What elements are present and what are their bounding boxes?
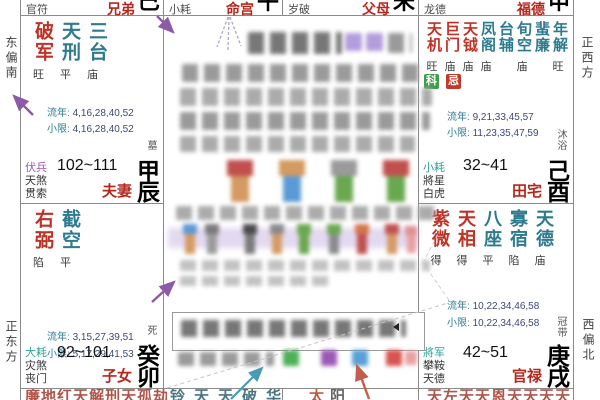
redacted-figure-icon xyxy=(270,224,284,254)
shensha-label: 岁破 xyxy=(288,1,310,17)
redacted-figure-icon xyxy=(331,160,357,202)
lifestage-label: 墓 xyxy=(143,140,158,151)
palace-name: 子女 xyxy=(102,365,132,386)
redacted-figure-icon xyxy=(205,224,219,254)
age-range: 92~101 xyxy=(57,344,111,362)
star-tianyue: 天钺 xyxy=(459,21,477,53)
redacted-text xyxy=(181,320,406,337)
star-status: 平 xyxy=(475,252,501,268)
liunian-row: 流年: 10,22,34,46,58 xyxy=(447,297,539,312)
age-range: 102~111 xyxy=(57,157,117,175)
redacted-summary-box xyxy=(172,312,425,351)
ziwei-chart: 东偏南 正东方 正西方 西偏北 官符 兄弟 巳 小耗 命宫 午 岁破 父母 未 … xyxy=(0,0,600,400)
redacted-figure-icon xyxy=(243,224,257,254)
star-tianxiang: 天相 xyxy=(449,209,475,249)
palace-name: 官禄 xyxy=(512,365,542,386)
shensha-label: 官符 xyxy=(26,1,48,17)
star-status: 庙 xyxy=(527,252,553,268)
redacted-text xyxy=(182,64,420,82)
palace-footer-si: 官符 兄弟 巳 xyxy=(21,0,163,15)
palace-name: 夫妻 xyxy=(102,180,132,201)
palace-you-property: 天机 巨门 天钺 凤阁 台辅 旬空 蜚廉 年解 旺 庙 庙 庙 庙 旺 科 忌 … xyxy=(419,16,572,203)
compass-label-due-west: 正西方 xyxy=(579,36,596,81)
legend-red-badge xyxy=(386,350,402,366)
star-status: 陷 xyxy=(501,252,527,268)
redacted-text xyxy=(178,352,274,366)
redacted-text xyxy=(388,33,412,53)
xiaoxian-row: 小限: 10,22,34,46,58 xyxy=(447,314,539,329)
star-status: 旺 xyxy=(549,58,567,74)
compass-label-due-east: 正东方 xyxy=(3,320,20,365)
star-bazuo: 八座 xyxy=(475,209,501,249)
palace-partial-chou: 铃天天破华 xyxy=(164,389,288,400)
star-feilian: 蜚廉 xyxy=(531,21,549,53)
redacted-text xyxy=(176,206,438,220)
redacted-figure-icon xyxy=(297,224,311,254)
star-status: 庙 xyxy=(79,66,106,82)
star-status: 平 xyxy=(52,66,79,82)
redacted-figure-icon xyxy=(327,224,341,254)
palace-footer-shen: 龙德 福德 申 xyxy=(419,0,573,15)
lifestage-label: 冠带 xyxy=(553,316,568,338)
lifestage-label: 沐浴 xyxy=(553,129,568,151)
legend-blue-badge xyxy=(352,350,368,366)
xiaoxian-row: 小限: 11,23,35,47,59 xyxy=(447,124,539,139)
star-tianji: 天机 xyxy=(423,21,441,53)
redacted-text xyxy=(180,112,430,130)
branch-char: 未 xyxy=(393,0,415,13)
redacted-figure-icon xyxy=(279,160,305,202)
star-status: 庙 xyxy=(513,58,531,74)
grid-line xyxy=(163,0,164,400)
sihua-ji-badge: 忌 xyxy=(446,74,461,89)
star-status: 庙 xyxy=(459,58,477,74)
star-status: 旺 xyxy=(423,58,441,74)
age-range: 42~51 xyxy=(463,344,508,362)
star-taifu: 台辅 xyxy=(495,21,513,53)
redacted-figure-icon xyxy=(405,226,417,253)
star-status xyxy=(531,58,549,74)
shensha-label: 小耗 xyxy=(169,1,191,17)
ganzhi: 庚 戌 xyxy=(547,346,570,388)
palace-footer-wei: 岁破 父母 未 xyxy=(283,0,418,15)
star-status: 陷 xyxy=(25,254,52,270)
palace-name: 父母 xyxy=(362,0,390,19)
star-status xyxy=(495,58,513,74)
ganzhi: 甲 辰 xyxy=(137,161,160,203)
age-range: 32~41 xyxy=(463,157,508,175)
star-status: 平 xyxy=(52,254,79,270)
star-pojun: 破军 xyxy=(25,21,52,63)
dashed-fan-line xyxy=(217,17,228,47)
grid-line xyxy=(573,0,574,400)
star-fengge: 凤阁 xyxy=(477,21,495,53)
redacted-purple-tag xyxy=(366,33,383,51)
palace-chen-spouse: 破军 天刑 三台 旺 平 庙 流年: 4,16,28,40,52 小限: 4,1… xyxy=(21,16,162,203)
redacted-text xyxy=(180,260,430,271)
star-tianxing: 天刑 xyxy=(52,21,79,63)
dashed-fan-line xyxy=(228,17,229,50)
palace-name: 命宫 xyxy=(226,0,254,19)
shensha-stack: 將军 攀鞍 天德 xyxy=(423,347,445,386)
redacted-figure-icon xyxy=(183,224,197,254)
star-status: 得 xyxy=(449,252,475,268)
redacted-figure-icon xyxy=(383,160,409,202)
redacted-text xyxy=(180,136,415,152)
star-youbi: 右弼 xyxy=(25,209,52,251)
star-nianjie: 年解 xyxy=(549,21,567,53)
redacted-figure-icon xyxy=(355,224,369,254)
palace-mao-children: 右弼 截空 陷 平 流年: 3,15,27,39,51 小限: 5,17,29,… xyxy=(21,204,162,388)
liunian-row: 流年: 3,15,27,39,51 xyxy=(47,328,134,343)
compass-label-east-south: 东偏南 xyxy=(3,36,20,81)
shensha-stack: 小耗 將星 白虎 xyxy=(423,162,445,201)
sihua-ke-badge: 科 xyxy=(424,74,439,89)
star-tiande: 天德 xyxy=(527,209,553,249)
xiaoxian-row: 小限: 4,16,28,40,52 xyxy=(47,120,134,135)
star-status: 庙 xyxy=(477,58,495,74)
palace-partial-yin: 廉地红天解刑天孤劫 xyxy=(21,389,167,400)
star-xunkong: 旬空 xyxy=(513,21,531,53)
ganzhi: 癸 卯 xyxy=(137,346,160,388)
legend-pink-badge xyxy=(405,351,417,365)
redacted-text xyxy=(180,88,432,106)
star-jumen: 巨门 xyxy=(441,21,459,53)
pointer-marker xyxy=(393,323,399,331)
palace-xu-career: 紫微 天相 八座 寡宿 天德 得 得 平 陷 庙 流年: 10,22,34,46… xyxy=(419,204,572,388)
palace-footer-wu: 小耗 命宫 午 xyxy=(164,0,282,15)
liunian-row: 流年: 9,21,33,45,57 xyxy=(447,108,534,123)
star-status: 庙 xyxy=(441,58,459,74)
liunian-row: 流年: 4,16,28,40,52 xyxy=(47,104,134,119)
dashed-fan-line xyxy=(230,17,241,46)
lifestage-label: 死 xyxy=(143,325,158,336)
palace-name: 田宅 xyxy=(512,180,542,201)
star-jiekong: 截空 xyxy=(52,209,79,251)
star-santai: 三台 xyxy=(79,21,106,63)
legend-purple-badge xyxy=(321,350,337,366)
star-guasu: 寡宿 xyxy=(501,209,527,249)
branch-char: 巳 xyxy=(138,0,160,13)
shensha-stack: 伏兵 天煞 贯索 xyxy=(25,162,47,201)
palace-partial-hai: 天左天天恩天天天天 xyxy=(419,389,581,400)
compass-label-west-north: 西偏北 xyxy=(580,318,597,363)
redacted-purple-tag xyxy=(345,33,362,51)
branch-char: 午 xyxy=(257,0,279,13)
ganzhi: 己 酉 xyxy=(547,161,570,203)
branch-char: 申 xyxy=(548,0,570,13)
legend-green-badge xyxy=(283,350,299,366)
redacted-figure-icon xyxy=(227,160,253,202)
redacted-figure-icon xyxy=(385,224,399,254)
shensha-stack: 大耗 灾煞 丧门 xyxy=(25,347,47,386)
star-status: 旺 xyxy=(25,66,52,82)
redacted-text xyxy=(248,32,342,54)
shensha-label: 龙德 xyxy=(424,1,446,17)
redacted-text xyxy=(180,276,330,286)
